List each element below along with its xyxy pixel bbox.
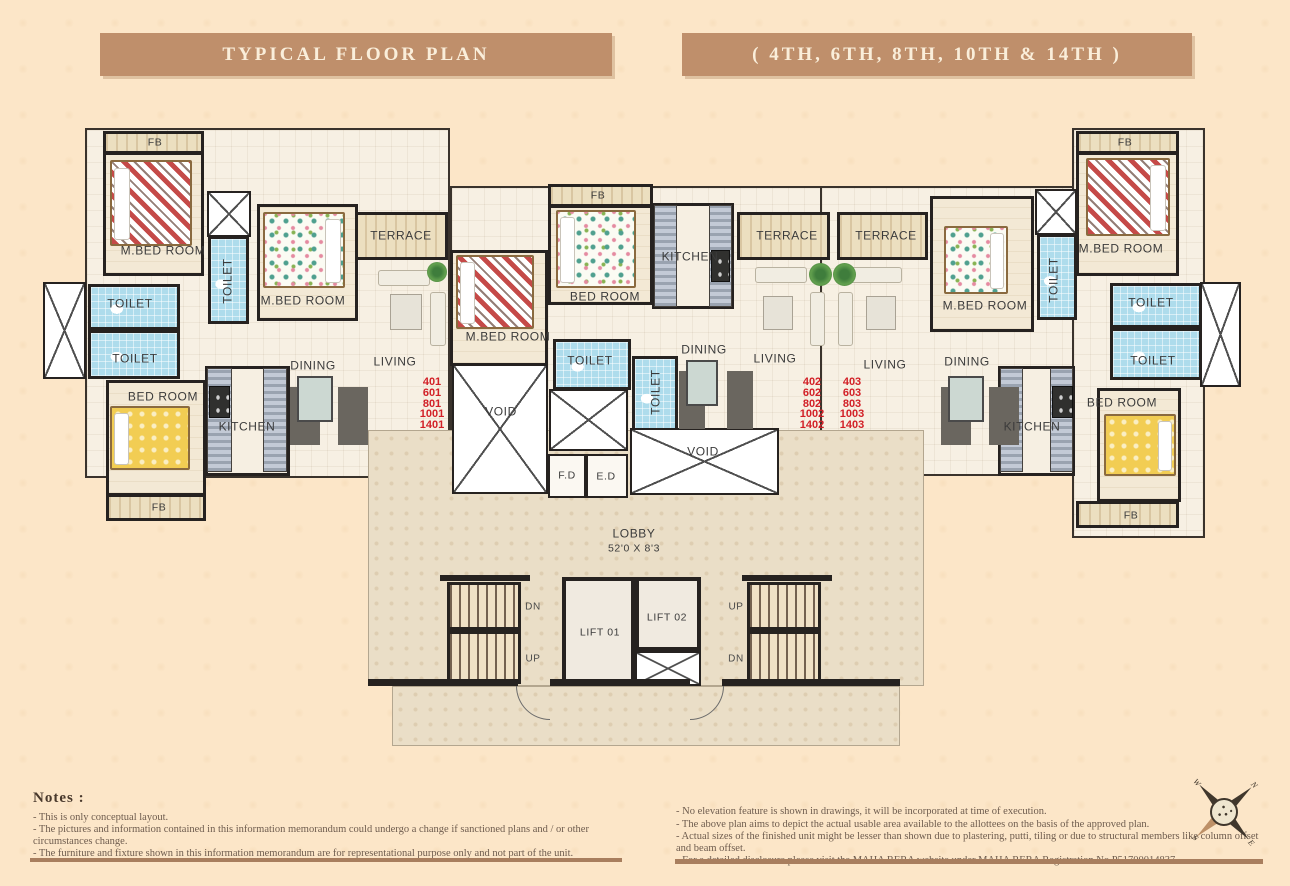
- lobby-wall: [368, 679, 518, 686]
- svg-text:S: S: [1191, 833, 1200, 842]
- note-line: - The above plan aims to depict the actu…: [676, 819, 1262, 831]
- toilet-left-lower: [88, 330, 180, 379]
- stair-wall: [742, 575, 832, 581]
- divider-rule-right: [675, 859, 1263, 864]
- stove-icon: [711, 250, 730, 282]
- flower-bed-bottom-left: [106, 494, 206, 521]
- coffee-table: [763, 296, 793, 330]
- double-bed: [556, 210, 636, 288]
- note-line: - Actual sizes of the finished unit migh…: [676, 831, 1262, 854]
- stair-landing-divider: [447, 627, 521, 634]
- sofa: [378, 270, 430, 286]
- compass-icon: N E S W: [1182, 770, 1266, 854]
- kitchen-counter: [1050, 368, 1073, 472]
- double-bed: [456, 255, 534, 329]
- toilet-center-vertical: [632, 356, 678, 434]
- lift-01-shaft: [562, 577, 635, 685]
- sofa: [755, 267, 807, 283]
- coffee-table: [866, 296, 896, 330]
- flower-bed-top-right: [1076, 131, 1179, 154]
- svg-text:E: E: [1245, 837, 1256, 847]
- toilet-right-lower: [1110, 328, 1202, 380]
- dining-table: [686, 360, 718, 406]
- double-bed: [1086, 158, 1170, 236]
- sofa: [838, 292, 853, 346]
- double-bed: [1104, 414, 1176, 476]
- toilet-left-upper: [88, 284, 180, 330]
- divider-rule-left: [30, 858, 622, 862]
- stair-landing-divider: [747, 627, 821, 634]
- notes-left: Notes : - This is only conceptual layout…: [33, 793, 633, 861]
- note-line: - This is only conceptual layout.: [33, 812, 633, 824]
- terrace-center-2: [837, 212, 928, 260]
- kitchen-counter: [654, 205, 677, 307]
- lift-02-shaft: [635, 577, 701, 651]
- duct-left: [207, 191, 251, 237]
- lobby-lower-floor: [392, 686, 900, 746]
- kitchen-counter: [1000, 368, 1023, 472]
- flower-bed-top-left: [103, 131, 204, 154]
- sofa: [850, 267, 902, 283]
- stove-icon: [209, 386, 230, 418]
- void-right-shaft: [630, 428, 779, 495]
- toilet-center: [553, 339, 631, 390]
- void-left-shaft: [452, 364, 548, 494]
- floor-plan-drawing: FBM.BED ROOMTOILETM.BED ROOMTERRACETOILE…: [0, 0, 1290, 886]
- electrical-duct-box: [586, 454, 628, 498]
- kitchen-counter: [207, 368, 232, 472]
- double-bed: [110, 160, 192, 246]
- floor-plan-page: TYPICAL FLOOR PLAN ( 4TH, 6TH, 8TH, 10TH…: [0, 0, 1290, 886]
- terrace-center-1: [737, 212, 830, 260]
- duct-right: [1035, 189, 1077, 235]
- dining-table: [297, 376, 333, 422]
- coffee-table: [390, 294, 422, 330]
- plant-icon: [809, 263, 832, 286]
- dining-table: [948, 376, 984, 422]
- lobby-wall: [550, 679, 690, 686]
- double-bed: [263, 212, 345, 288]
- stove-icon: [1052, 386, 1073, 418]
- flower-bed-bottom-right: [1076, 501, 1179, 528]
- notes-title: Notes :: [33, 793, 633, 805]
- balcony-left: [43, 282, 86, 379]
- flower-bed-center: [548, 184, 653, 207]
- toilet-right-upper: [1110, 283, 1202, 328]
- kitchen-counter: [263, 368, 287, 472]
- note-line: - The pictures and information contained…: [33, 824, 633, 847]
- note-line: - No elevation feature is shown in drawi…: [676, 806, 1262, 818]
- sofa: [810, 292, 825, 346]
- lobby-wall: [722, 679, 900, 686]
- stair-wall: [440, 575, 530, 581]
- fire-duct-box: [548, 454, 586, 498]
- toilet-right-strip: [1037, 234, 1077, 320]
- double-bed: [944, 226, 1008, 294]
- plant-icon: [833, 263, 856, 286]
- plant-icon: [427, 262, 447, 282]
- balcony-right: [1200, 282, 1241, 387]
- duct-center: [549, 389, 628, 451]
- sofa: [430, 292, 446, 346]
- terrace-left: [352, 212, 448, 260]
- double-bed: [110, 406, 190, 470]
- toilet-left-strip: [208, 236, 249, 324]
